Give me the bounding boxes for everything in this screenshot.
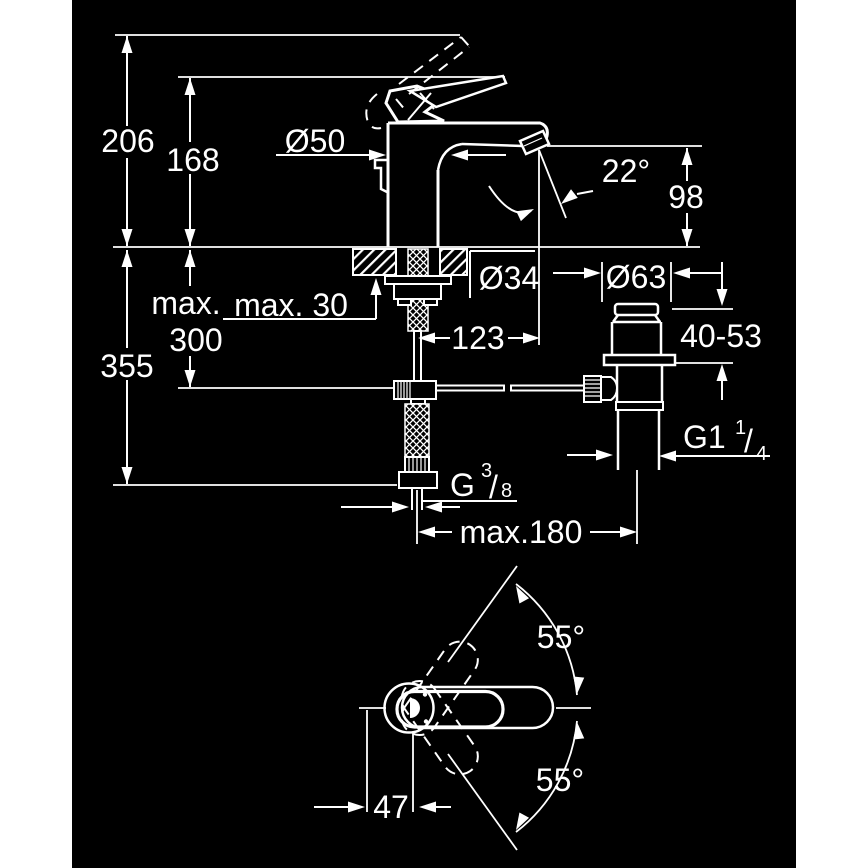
dim-hose-max-prefix: max. xyxy=(151,285,220,321)
lever-joint-socket xyxy=(601,377,617,400)
dim-handle-height: 168 xyxy=(166,142,219,178)
dim-swing-upper: 55° xyxy=(537,619,585,655)
nut-tab-left xyxy=(398,299,411,305)
dim-aerator-angle: 22° xyxy=(602,153,650,189)
horizontal-rod-left xyxy=(436,386,504,391)
supply-thread-base: G xyxy=(450,467,475,503)
connection-hex-nut xyxy=(399,472,437,488)
waste-flange xyxy=(604,355,675,365)
waste-thread-base: G1 xyxy=(683,419,726,455)
horizontal-rod-right xyxy=(511,386,585,391)
counter-hatch-right xyxy=(440,249,467,275)
supply-thread-slash: / xyxy=(489,469,498,505)
waste-thread-denominator: 4 xyxy=(756,443,767,465)
drawing-canvas: 206 168 Ø50 22° 98 max. 300 max. 30 Ø34 … xyxy=(72,0,796,868)
dim-waste-clamp-range: 40-53 xyxy=(680,318,762,354)
counter-hatch-left xyxy=(353,249,396,275)
waste-plug-cap xyxy=(615,304,658,315)
supply-thread-denominator: 8 xyxy=(501,480,512,502)
detail-dot-top xyxy=(423,692,427,696)
mounting-nut xyxy=(394,284,441,299)
dim-install-depth: 355 xyxy=(100,348,153,384)
nut-tab-right xyxy=(424,299,437,305)
dim-waste-flange-diameter: Ø63 xyxy=(606,259,666,295)
dim-deck-hole-diameter: Ø34 xyxy=(479,260,539,296)
dim-spout-projection: 123 xyxy=(451,320,504,356)
braided-hose xyxy=(405,404,429,457)
dim-handle-offset: 47 xyxy=(373,789,409,825)
drawing-page: 206 168 Ø50 22° 98 max. 300 max. 30 Ø34 … xyxy=(0,0,868,868)
dim-hose-max-value: 300 xyxy=(169,322,222,358)
dim-body-diameter: Ø50 xyxy=(285,123,345,159)
waste-coupling-ring xyxy=(616,402,663,410)
mounting-washer xyxy=(385,276,451,284)
waste-thread-slash: / xyxy=(744,423,753,459)
detail-dot-bottom xyxy=(424,719,428,723)
dim-swing-lower: 55° xyxy=(536,762,584,798)
faucet-technical-drawing: 206 168 Ø50 22° 98 max. 300 max. 30 Ø34 … xyxy=(72,0,796,868)
dim-deck-thickness: max. 30 xyxy=(234,287,348,323)
dim-spout-height: 98 xyxy=(668,179,704,215)
dim-total-height: 206 xyxy=(101,123,154,159)
dim-rod-reach: max.180 xyxy=(460,514,583,550)
rod-tee-fitting xyxy=(394,381,436,399)
